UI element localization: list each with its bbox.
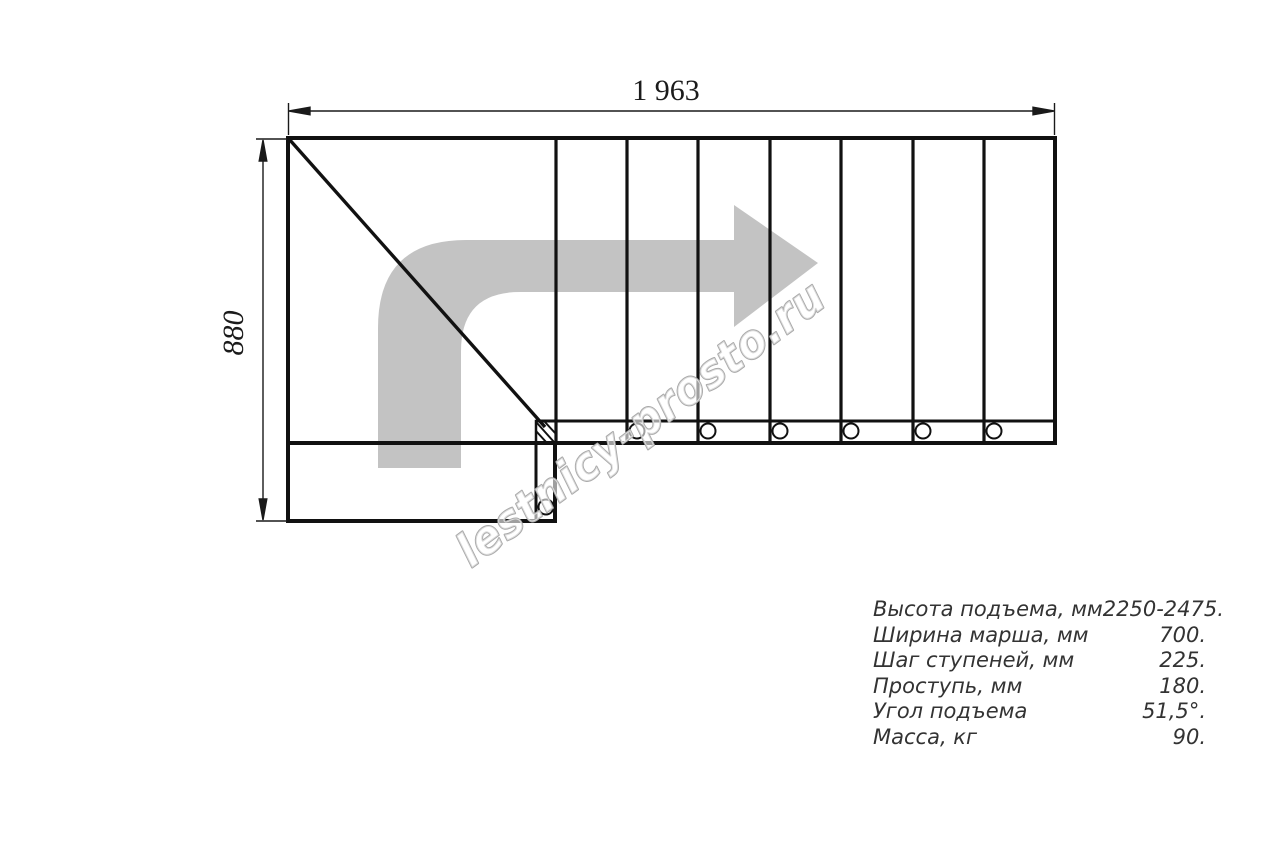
spec-table: Высота подъема, мм 2250-2475. Ширина мар… bbox=[873, 597, 1206, 751]
spec-row: Шаг ступеней, мм 225. bbox=[873, 648, 1206, 674]
baluster-circle bbox=[773, 424, 788, 439]
spec-value: 700. bbox=[1159, 623, 1206, 649]
staircase-plan-page: 1 963 880 lestnicy-prosto.ru Высота подъ… bbox=[0, 0, 1280, 853]
spec-row: Высота подъема, мм 2250-2475. bbox=[873, 597, 1206, 623]
spec-label: Проступь, мм bbox=[873, 674, 1022, 700]
spec-label: Шаг ступеней, мм bbox=[873, 648, 1074, 674]
dimension-annotations bbox=[256, 103, 1055, 521]
baluster-circle bbox=[701, 424, 716, 439]
spec-row: Ширина марша, мм 700. bbox=[873, 623, 1206, 649]
dimension-arrow-icon bbox=[259, 140, 267, 161]
baluster-circle bbox=[916, 424, 931, 439]
spec-label: Высота подъема, мм bbox=[873, 597, 1103, 623]
spec-label: Масса, кг bbox=[873, 725, 977, 751]
spec-label: Угол подъема bbox=[873, 699, 1027, 725]
dimension-top-label: 1 963 bbox=[632, 74, 700, 107]
spec-row: Масса, кг 90. bbox=[873, 725, 1206, 751]
spec-value: 51,5°. bbox=[1142, 699, 1206, 725]
spec-row: Угол подъема 51,5°. bbox=[873, 699, 1206, 725]
spec-value: 2250-2475. bbox=[1103, 597, 1224, 623]
dimension-arrow-icon bbox=[259, 499, 267, 520]
spec-value: 180. bbox=[1159, 674, 1206, 700]
baluster-circle bbox=[844, 424, 859, 439]
baluster-circle bbox=[987, 424, 1002, 439]
dimension-top bbox=[289, 103, 1055, 135]
dimension-arrow-icon bbox=[1033, 107, 1054, 115]
dimension-left-label: 880 bbox=[217, 311, 250, 356]
dimension-left bbox=[256, 139, 287, 521]
spec-value: 90. bbox=[1173, 725, 1206, 751]
spec-row: Проступь, мм 180. bbox=[873, 674, 1206, 700]
spec-value: 225. bbox=[1159, 648, 1206, 674]
spec-label: Ширина марша, мм bbox=[873, 623, 1089, 649]
dimension-arrow-icon bbox=[289, 107, 310, 115]
newel-post-hatched bbox=[536, 421, 556, 443]
